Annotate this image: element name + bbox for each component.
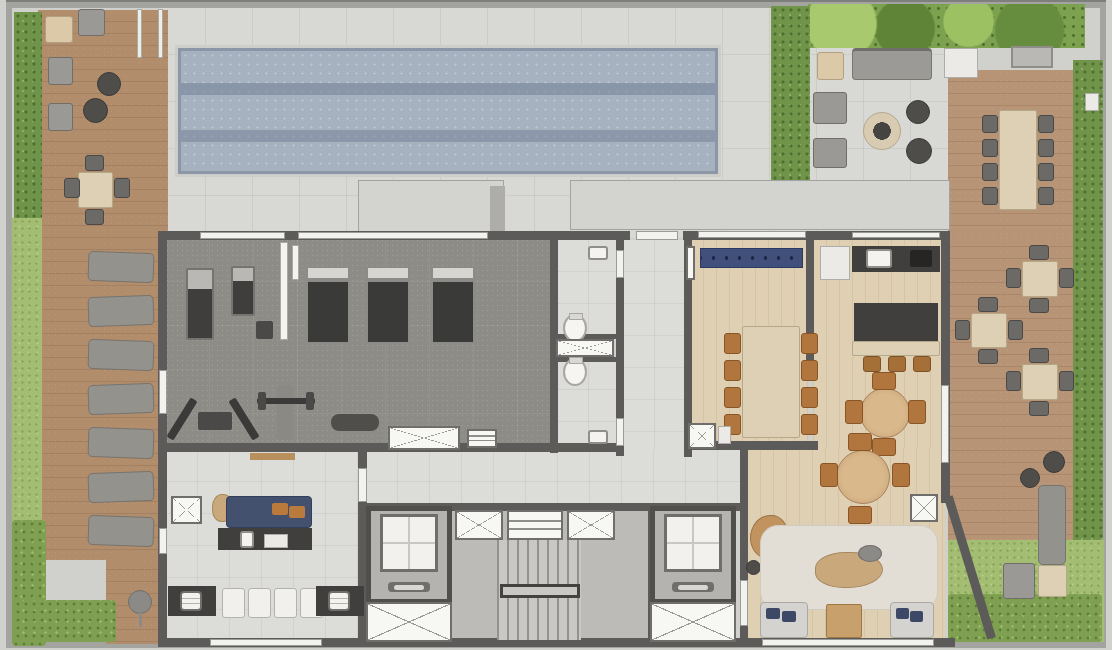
games-chair — [222, 588, 245, 618]
outdoor-shower-stem — [139, 613, 142, 627]
dining-sideboard — [718, 426, 731, 444]
terrace-pouf — [906, 100, 930, 124]
entry-mat — [490, 186, 505, 232]
lounge-window-east — [941, 385, 949, 463]
deck-table-chair — [1038, 163, 1054, 181]
sofa-pillow — [896, 608, 909, 619]
lounge-chair — [845, 400, 863, 424]
lounge-round-table — [836, 450, 890, 504]
sun-lounger — [87, 471, 154, 503]
deck-table-chair — [1038, 115, 1054, 133]
lounge-chair — [848, 506, 872, 524]
patio-chair — [1029, 298, 1049, 313]
core-shaft — [455, 510, 503, 540]
games-lounge-window-south — [210, 639, 322, 646]
deck-dining-chair — [64, 178, 80, 198]
kitchen-cooktop — [910, 250, 932, 267]
hallway-floor — [622, 240, 686, 456]
elevator-duct — [366, 602, 452, 642]
deck-table-chair — [982, 115, 998, 133]
terrace-pouf — [906, 138, 932, 164]
sun-lounger — [87, 339, 154, 371]
weight-machine — [186, 268, 214, 340]
garden-hedge-column — [771, 6, 810, 186]
treadmill — [431, 266, 475, 344]
treadmill — [366, 266, 410, 344]
elevator-cab — [380, 514, 438, 572]
deck-armchair — [48, 103, 73, 131]
sofa-pillow — [782, 611, 796, 622]
stair-handrail — [500, 584, 580, 598]
hall-entry-door — [636, 231, 678, 240]
lounge-chair — [908, 400, 926, 424]
terrace-sofa — [852, 48, 932, 80]
lounge-pouf — [746, 560, 761, 575]
dining-chair — [801, 414, 818, 435]
workout-bench — [277, 385, 293, 440]
bath-divider-wall-b — [550, 357, 620, 362]
games-lounge-door — [358, 468, 367, 502]
pool-bench-slat — [137, 9, 142, 58]
toilet — [563, 314, 587, 342]
fire-pit-table — [863, 112, 901, 150]
patio-table — [1022, 364, 1058, 400]
sun-lounger — [87, 251, 154, 283]
side-table — [83, 98, 108, 123]
patio-chair — [1029, 245, 1049, 260]
dumbbell-rack — [198, 412, 232, 430]
deck-dining-chair — [85, 155, 104, 171]
lounge-chair — [892, 463, 910, 487]
dining-window-north — [698, 231, 806, 238]
deck-long-table — [999, 110, 1037, 210]
left-hedge — [14, 12, 42, 218]
deck-armchair — [45, 16, 73, 43]
toilet — [563, 358, 587, 386]
dining-chair — [724, 387, 741, 408]
bottom-right-bushes — [948, 594, 1102, 642]
deck-pouf — [1043, 451, 1065, 473]
deck-table-chair — [1038, 139, 1054, 157]
lounge-chair — [848, 433, 872, 451]
barbell-plate — [306, 392, 314, 410]
kitchen-bar-ledge — [852, 341, 940, 356]
games-chair — [248, 588, 271, 618]
kitchen-fridge — [820, 246, 850, 280]
deck-table-chair — [982, 139, 998, 157]
lounge-coffee-table — [826, 604, 862, 638]
dining-table — [742, 326, 800, 438]
lounge-chair — [872, 372, 896, 390]
bar-stool — [863, 356, 881, 372]
deck-side-table — [1038, 565, 1067, 597]
floor-plan — [0, 0, 1112, 650]
elevator-cab — [664, 514, 722, 572]
dining-chair — [724, 360, 741, 381]
bar-stool — [888, 356, 906, 372]
patio-chair — [1006, 371, 1021, 391]
sun-lounger — [87, 295, 154, 327]
patio-chair — [978, 349, 998, 364]
bath-shaft — [556, 339, 614, 357]
gym-partition — [280, 242, 288, 340]
dining-chair — [801, 387, 818, 408]
drinking-fountain — [1085, 93, 1099, 111]
patio-chair — [1008, 320, 1023, 340]
ottoman-cushion — [858, 545, 882, 562]
table-notebook — [240, 531, 254, 548]
dining-window-marker — [686, 246, 695, 280]
dining-banquette — [700, 248, 803, 268]
games-appliance — [328, 591, 350, 611]
gym-window-b — [298, 232, 488, 239]
dining-chair — [724, 333, 741, 354]
gym-partition — [292, 245, 299, 280]
elevator-duct — [650, 602, 736, 642]
terrace-cabinet — [944, 48, 978, 78]
weight-plate — [256, 321, 273, 339]
games-chair — [274, 588, 297, 618]
weight-machine — [231, 266, 255, 316]
patio-chair — [978, 297, 998, 312]
right-hedge — [1073, 60, 1103, 542]
pool-bench-slat — [158, 9, 163, 58]
patio-chair — [1029, 348, 1049, 363]
deck-lounger — [1038, 485, 1066, 565]
patio-chair — [1059, 371, 1074, 391]
lounge-chair — [820, 463, 838, 487]
deck-armchair — [78, 9, 105, 36]
games-shaft — [171, 496, 202, 524]
sun-lounger — [87, 515, 154, 547]
terrace-planter — [1011, 46, 1053, 68]
gym-floor-hatch — [388, 426, 460, 450]
patio-table — [1022, 261, 1058, 297]
deck-table-chair — [982, 163, 998, 181]
building-wall-left — [158, 231, 167, 647]
kitchen-window-north — [852, 232, 940, 238]
kitchen-sink — [866, 249, 892, 268]
sofa-pillow — [272, 503, 288, 515]
barbell-plate — [258, 392, 266, 410]
sun-lounger — [87, 383, 154, 415]
deck-table-chair — [982, 187, 998, 205]
dining-kitchen-wall — [806, 231, 814, 377]
patio-chair — [1029, 401, 1049, 416]
side-table — [97, 72, 121, 96]
games-lounge-window-west — [159, 528, 167, 554]
flat-bench — [331, 414, 379, 431]
elevator-door — [388, 582, 430, 592]
gym-vent — [467, 429, 497, 448]
bath-2-door — [616, 418, 624, 446]
table-decor — [264, 534, 288, 548]
deck-table-chair — [1038, 187, 1054, 205]
deck-armchair — [48, 57, 73, 85]
core-shaft — [567, 510, 615, 540]
patio-chair — [955, 320, 970, 340]
elevator-lobby-floor — [365, 450, 743, 508]
lounge-door-west — [740, 580, 748, 626]
deck-chair — [1003, 563, 1035, 599]
pool — [178, 48, 718, 174]
gym-window-a — [200, 232, 285, 239]
bath-1-door — [616, 250, 624, 278]
terrace-armchair — [813, 92, 847, 124]
bath-south-wall — [550, 443, 624, 452]
sofa-pillow — [910, 611, 923, 622]
canopy-glass-east — [570, 180, 950, 230]
deck-dining-chair — [114, 178, 130, 198]
games-wall-shelf — [250, 453, 295, 460]
deck-dining-chair — [85, 209, 104, 225]
deck-dining-table — [78, 172, 113, 208]
patio-table — [971, 313, 1007, 348]
north-garden-shrubs — [808, 4, 1085, 48]
lounge-shaft — [910, 494, 938, 522]
bar-stool — [913, 356, 931, 372]
dining-shaft — [688, 423, 716, 449]
lounge-window-south — [762, 639, 934, 646]
sun-lounger — [87, 427, 154, 459]
deck-pouf — [1020, 468, 1040, 488]
lounge-round-table — [860, 388, 910, 438]
washbasin — [588, 430, 608, 444]
sofa-pillow — [766, 608, 780, 619]
bottom-left-bushes — [14, 600, 116, 642]
sofa-pillow — [289, 506, 305, 518]
games-appliance — [180, 591, 202, 611]
terrace-armchair — [813, 138, 847, 168]
terrace-stool — [817, 52, 844, 80]
treadmill — [306, 266, 350, 344]
kitchen-island — [854, 303, 938, 341]
outdoor-shower — [128, 590, 152, 614]
dining-chair — [801, 360, 818, 381]
canopy-glass-west — [358, 180, 504, 232]
washbasin — [588, 246, 608, 260]
elevator-door — [672, 582, 714, 592]
dining-chair — [801, 333, 818, 354]
patio-chair — [1059, 268, 1074, 288]
core-vent — [507, 510, 563, 540]
gym-window-west — [159, 370, 167, 414]
patio-chair — [1006, 268, 1021, 288]
